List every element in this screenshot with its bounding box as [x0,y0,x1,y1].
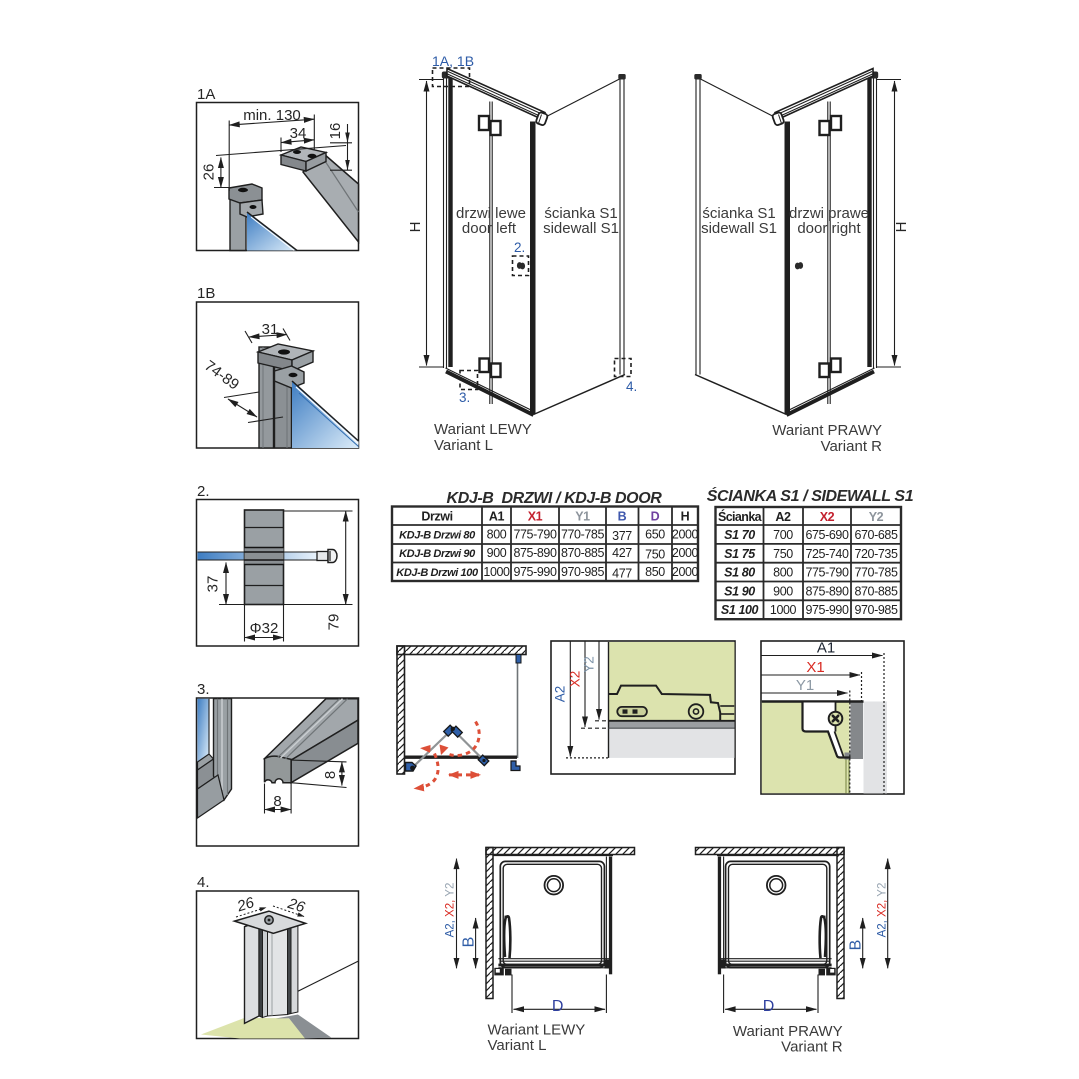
svg-text:X2: X2 [567,671,582,688]
svg-text:870-885: 870-885 [854,584,898,598]
svg-text:970-985: 970-985 [854,603,898,617]
svg-text:750: 750 [773,547,793,561]
svg-text:Wariant PRAWY: Wariant PRAWY [733,1023,843,1040]
svg-text:800: 800 [487,528,507,542]
svg-text:KDJ-B Drzwi 90: KDJ-B Drzwi 90 [399,548,476,560]
svg-text:74-89: 74-89 [201,357,242,393]
svg-text:427: 427 [612,546,632,560]
svg-text:D: D [552,998,564,1015]
svg-text:650: 650 [645,528,665,542]
svg-text:Y1: Y1 [575,510,590,524]
svg-text:4.: 4. [626,379,637,394]
svg-text:Variant R: Variant R [781,1039,843,1056]
svg-text:Y2: Y2 [581,656,596,673]
svg-text:870-885: 870-885 [561,546,605,560]
svg-text:770-785: 770-785 [561,528,605,542]
svg-text:D: D [651,510,660,524]
svg-text:37: 37 [205,576,222,593]
svg-text:Variant L: Variant L [488,1037,547,1054]
svg-text:2000: 2000 [672,565,699,579]
svg-text:B: B [618,510,627,524]
svg-text:26: 26 [201,164,218,181]
svg-text:670-685: 670-685 [854,528,898,542]
svg-text:min. 130: min. 130 [243,107,301,124]
svg-text:B: B [461,937,478,948]
svg-text:A2, X2, Y2: A2, X2, Y2 [445,883,457,938]
svg-text:2.: 2. [514,240,525,255]
svg-text:770-785: 770-785 [854,566,898,580]
svg-text:KDJ-B Drzwi 80: KDJ-B Drzwi 80 [399,530,476,542]
svg-text:900: 900 [487,546,507,560]
svg-text:sidewall S1: sidewall S1 [543,220,619,237]
svg-text:H: H [893,222,910,233]
svg-text:Wariant LEWY: Wariant LEWY [488,1022,586,1039]
svg-text:2000: 2000 [672,528,699,542]
svg-text:377: 377 [612,529,632,543]
svg-text:sidewall S1: sidewall S1 [701,220,777,237]
svg-text:Variant R: Variant R [821,438,883,455]
svg-text:775-790: 775-790 [805,566,849,580]
svg-text:H: H [681,510,690,524]
svg-text:970-985: 970-985 [561,565,605,579]
svg-text:1B: 1B [197,285,215,302]
svg-text:2.: 2. [197,483,210,500]
svg-text:720-735: 720-735 [854,547,898,561]
svg-text:875-890: 875-890 [513,546,557,560]
svg-text:A1: A1 [489,510,505,524]
svg-text:B: B [848,940,865,951]
svg-text:Wariant PRAWY: Wariant PRAWY [772,422,882,439]
svg-text:3.: 3. [459,390,470,405]
svg-text:X1: X1 [528,510,543,524]
svg-text:8: 8 [322,771,339,779]
svg-text:X1: X1 [806,659,824,676]
svg-text:Drzwi: Drzwi [421,510,452,524]
svg-text:A2: A2 [775,510,791,524]
svg-text:975-990: 975-990 [513,565,557,579]
svg-text:850: 850 [645,565,665,579]
svg-text:A2, X2, Y2: A2, X2, Y2 [877,883,889,938]
svg-text:S1 70: S1 70 [724,528,755,542]
svg-text:1A: 1A [197,86,215,103]
svg-text:26: 26 [285,895,308,917]
svg-text:26: 26 [234,894,257,916]
svg-text:A2: A2 [553,686,568,703]
svg-text:door left: door left [462,220,517,237]
svg-text:800: 800 [773,566,793,580]
svg-text:16: 16 [327,123,344,140]
svg-text:2000: 2000 [672,546,699,560]
svg-text:79: 79 [326,614,343,631]
svg-text:Variant L: Variant L [434,437,493,454]
svg-text:Y2: Y2 [869,510,884,524]
svg-text:875-890: 875-890 [805,584,849,598]
svg-text:750: 750 [645,548,665,562]
svg-text:Y1: Y1 [796,677,814,694]
svg-text:700: 700 [773,528,793,542]
svg-text:675-690: 675-690 [805,528,849,542]
svg-text:S1 75: S1 75 [724,547,756,561]
svg-text:D: D [763,998,775,1015]
svg-text:door right: door right [797,220,861,237]
svg-text:725-740: 725-740 [805,547,849,561]
svg-text:S1 90: S1 90 [724,584,755,598]
svg-text:KDJ-B DRZWI / KDJ-B DOOR: KDJ-B DRZWI / KDJ-B DOOR [447,490,663,507]
svg-text:4.: 4. [197,874,210,891]
svg-text:Wariant LEWY: Wariant LEWY [434,421,532,438]
svg-text:900: 900 [773,584,793,598]
svg-text:1000: 1000 [770,603,797,617]
svg-text:1000: 1000 [483,565,510,579]
svg-text:X2: X2 [820,510,835,524]
svg-text:A1: A1 [817,640,835,657]
svg-text:477: 477 [612,567,632,581]
svg-text:S1 80: S1 80 [724,566,755,580]
svg-text:975-990: 975-990 [805,603,849,617]
svg-text:8: 8 [273,793,281,810]
svg-text:KDJ-B Drzwi 100: KDJ-B Drzwi 100 [396,567,479,579]
svg-text:S1 100: S1 100 [721,603,759,617]
svg-text:ŚCIANKA S1 / SIDEWALL S1: ŚCIANKA S1 / SIDEWALL S1 [707,486,914,505]
svg-text:Ścianka: Ścianka [718,509,763,524]
svg-text:775-790: 775-790 [513,528,557,542]
svg-text:34: 34 [290,125,307,142]
svg-text:3.: 3. [197,681,210,698]
svg-text:Φ32: Φ32 [250,620,279,637]
svg-text:H: H [407,222,424,233]
svg-text:1A, 1B: 1A, 1B [432,53,474,69]
